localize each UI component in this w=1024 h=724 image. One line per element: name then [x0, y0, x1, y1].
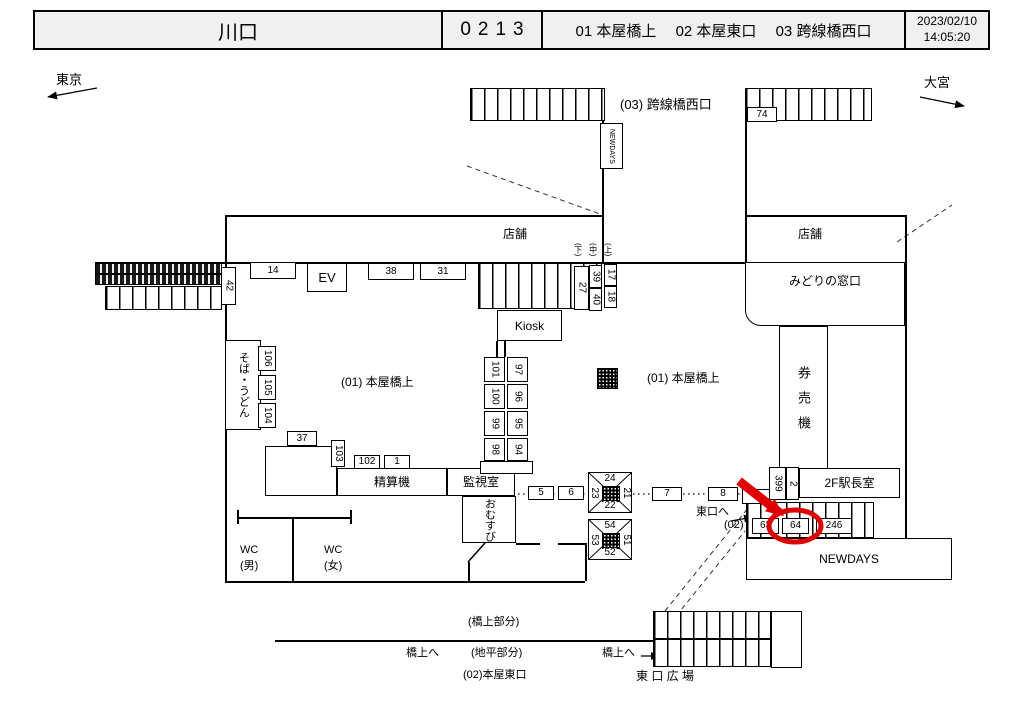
arrow-to-omiya — [920, 97, 964, 106]
bridge-west-exit-label: (03) 跨線橋西口 — [620, 96, 712, 115]
camera-box-5[interactable]: 5 — [528, 486, 554, 500]
wc-women-label: WC (女) — [324, 543, 342, 575]
room-soba-udon: そば・うどん — [225, 340, 261, 430]
escalator-band — [95, 263, 222, 274]
camera-box-101[interactable]: 101 — [484, 357, 505, 382]
room-store-annex — [265, 446, 337, 496]
station-name: 川口 — [35, 12, 443, 48]
datetime-box: 2023/02/10 14:05:20 — [906, 12, 988, 48]
honya-bridge-label-right: (01) 本屋橋上 — [647, 370, 720, 387]
platform-stairs-left — [105, 286, 222, 310]
wall — [558, 543, 585, 545]
wall — [237, 517, 350, 519]
camera-box-17[interactable]: 17 — [604, 264, 617, 286]
wall — [292, 517, 294, 581]
camera-box-97[interactable]: 97 — [507, 357, 528, 382]
camera-box-18[interactable]: 18 — [604, 286, 617, 308]
store-label-left: 店舗 — [503, 226, 527, 243]
camera-box-37[interactable]: 37 — [287, 431, 317, 446]
room-newdays-store: NEWDAYS — [746, 538, 952, 580]
room-newdays-bridge-kiosk: NEWDAYS — [600, 123, 623, 169]
bridge-part-label: (橋上部分) — [468, 615, 519, 631]
camera-box-39[interactable]: 39 — [589, 265, 602, 288]
wall — [585, 543, 587, 581]
stair-label-down: (下) — [572, 243, 584, 256]
stair-label-up: (上) — [602, 243, 614, 256]
camera-box-6[interactable]: 6 — [558, 486, 584, 500]
east-exit-plaza-label: 東 口 広 場 — [636, 668, 694, 685]
direction-omiya: 大宮 — [924, 74, 950, 93]
camera-box-103[interactable]: 103 — [331, 440, 345, 467]
escalator-band — [95, 274, 222, 285]
ground-part-label: (地平部分) — [471, 646, 522, 662]
camera-cluster-20s[interactable]: 24222321 — [588, 472, 632, 513]
camera-box-99[interactable]: 99 — [484, 411, 505, 436]
camera-box-8[interactable]: 8 — [708, 487, 738, 501]
camera-cluster-50s[interactable]: 54525351 — [588, 519, 632, 560]
direction-tokyo: 東京 — [56, 71, 82, 90]
camera-box-96[interactable]: 96 — [507, 384, 528, 409]
east-stairs-lower-a — [653, 611, 771, 639]
time-text: 14:05:20 — [924, 30, 971, 46]
wall — [504, 341, 506, 357]
camera-box-obscured[interactable] — [742, 489, 770, 504]
wall — [496, 341, 498, 357]
camera-box-104[interactable]: 104 — [258, 403, 276, 428]
header-bar: 川口 0213 01 本屋橋上 02 本屋東口 03 跨線橋西口 2023/02… — [33, 10, 990, 50]
wall — [516, 543, 540, 545]
camera-box-40[interactable]: 40 — [589, 288, 602, 311]
camera-box-42[interactable]: 42 — [221, 267, 236, 305]
wall — [237, 510, 239, 524]
camera-box-74[interactable]: 74 — [747, 107, 777, 122]
room-omusubi: おむすび — [462, 496, 516, 543]
camera-box-14[interactable]: 14 — [250, 262, 296, 279]
wall — [225, 581, 585, 583]
date-text: 2023/02/10 — [917, 14, 977, 30]
camera-box-21[interactable]: 21 — [621, 486, 631, 499]
east-stairs-lower-b — [653, 639, 771, 667]
wall — [745, 121, 747, 262]
wall — [350, 510, 352, 524]
camera-box-399[interactable]: 399 — [769, 467, 786, 500]
wall — [468, 562, 470, 581]
camera-box-1[interactable]: 1 — [384, 455, 410, 469]
camera-area-list: 01 本屋橋上 02 本屋東口 03 跨線橋西口 — [543, 12, 906, 48]
to-bridge-label-left: 橋上へ — [406, 646, 439, 662]
wall — [275, 640, 657, 642]
honya-bridge-label-left: (01) 本屋橋上 — [341, 374, 414, 391]
camera-box-100[interactable]: 100 — [484, 384, 505, 409]
station-monitor-page: 川口 0213 01 本屋橋上 02 本屋東口 03 跨線橋西口 2023/02… — [0, 0, 1024, 724]
room-ticket-vending-machines: 券売機 — [779, 326, 828, 470]
camera-box-7[interactable]: 7 — [652, 487, 682, 501]
camera-box-106[interactable]: 106 — [258, 346, 276, 371]
camera-box-105[interactable]: 105 — [258, 375, 276, 400]
room-fare-adjustment: 精算機 — [337, 468, 447, 496]
dashed-boundary-left — [467, 166, 600, 214]
area02-marker-label: (02) — [724, 518, 744, 534]
camera-box-27[interactable]: 27 — [574, 266, 589, 310]
camera-box-95[interactable]: 95 — [507, 411, 528, 436]
room-ev: EV — [307, 263, 347, 292]
wc-men-label: WC (男) — [240, 543, 258, 575]
store-label-right: 店舗 — [798, 226, 822, 243]
camera-box-94[interactable]: 94 — [507, 438, 528, 461]
room-midori-no-madoguchi: みどりの窓口 — [745, 262, 905, 326]
room-stationmaster-office-2f: 2F駅長室 — [799, 468, 900, 498]
wall — [905, 215, 907, 538]
camera-box-98[interactable]: 98 — [484, 438, 505, 461]
camera-box-102[interactable]: 102 — [354, 455, 380, 469]
to-bridge-label-right: 橋上へ — [602, 646, 635, 662]
pillar-hatch — [597, 368, 618, 389]
wall — [225, 215, 602, 217]
camera-box-64[interactable]: 64 — [782, 518, 809, 534]
room-kiosk: Kiosk — [497, 310, 562, 341]
wall — [745, 215, 905, 217]
camera-box-51[interactable]: 51 — [621, 533, 631, 546]
camera-box-31[interactable]: 31 — [420, 263, 466, 280]
camera-box-38[interactable]: 38 — [368, 263, 414, 280]
honya-east-exit-label: (02)本屋東口 — [463, 668, 527, 684]
camera-box-52[interactable]: 52 — [603, 548, 616, 558]
omusubi-corner-wall — [468, 543, 485, 562]
stair-label-middle: (中) — [587, 243, 599, 256]
camera-box-23[interactable]: 23 — [589, 486, 599, 499]
room-column-base — [480, 461, 533, 474]
camera-box-24[interactable]: 24 — [603, 474, 616, 484]
camera-box-53[interactable]: 53 — [589, 533, 599, 546]
camera-box-246[interactable]: 246 — [816, 518, 852, 534]
station-code: 0213 — [443, 12, 543, 48]
camera-box-54[interactable]: 54 — [603, 521, 616, 531]
bridge-stairs-left — [470, 88, 605, 121]
camera-box-2[interactable]: 2 — [786, 467, 799, 500]
camera-box-63[interactable]: 63 — [752, 518, 779, 534]
room-lower-stairs-side — [771, 611, 802, 668]
camera-box-22[interactable]: 22 — [603, 501, 616, 511]
